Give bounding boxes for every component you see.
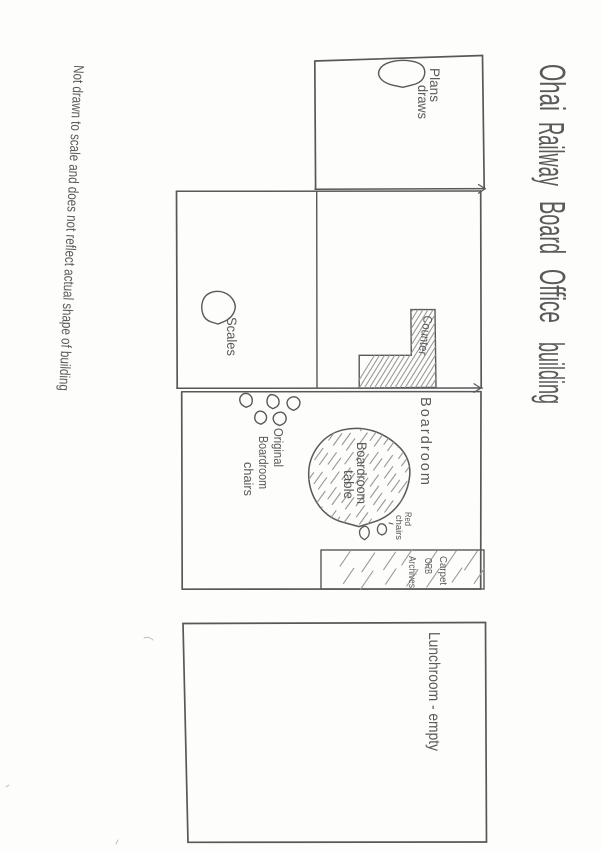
svg-text:table: table <box>341 470 357 499</box>
svg-text:Railway: Railway <box>531 122 572 186</box>
svg-text:Office: Office <box>532 269 573 323</box>
svg-text:Archives: Archives <box>406 556 417 588</box>
svg-text:chairs: chairs <box>394 515 404 541</box>
svg-text:Carpet: Carpet <box>437 556 448 585</box>
svg-text:Original: Original <box>271 428 286 467</box>
svg-text:building: building <box>531 342 572 404</box>
svg-text:Not drawn to scale and does no: Not drawn to scale and does not reflect … <box>55 65 86 391</box>
svg-text:Scales: Scales <box>224 317 240 356</box>
svg-text:Ohai: Ohai <box>532 64 573 111</box>
svg-text:Lunchroom - empty: Lunchroom - empty <box>425 632 442 751</box>
svg-text:Red: Red <box>403 512 413 526</box>
svg-text:ORB: ORB <box>422 558 433 574</box>
svg-text:Boardroom: Boardroom <box>417 397 433 485</box>
svg-text:draws: draws <box>415 85 431 119</box>
svg-text:Boardroom: Boardroom <box>256 436 271 489</box>
svg-text:Board: Board <box>532 201 573 254</box>
svg-text:chairs: chairs <box>241 462 256 496</box>
svg-text:Counter: Counter <box>415 315 434 357</box>
